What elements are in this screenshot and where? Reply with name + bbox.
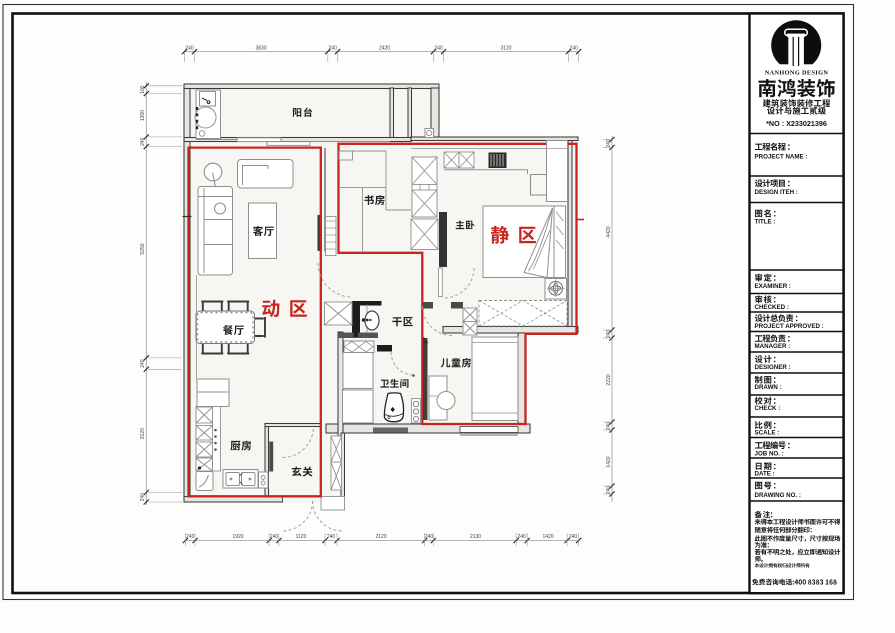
svg-text:4420: 4420 (606, 226, 612, 237)
svg-text:240: 240 (606, 422, 612, 431)
svg-text:240: 240 (327, 534, 336, 540)
svg-text:EXAMINER :: EXAMINER : (755, 283, 791, 290)
svg-text:240: 240 (606, 139, 612, 148)
svg-text:2130: 2130 (470, 534, 481, 540)
svg-text:240: 240 (518, 534, 527, 540)
svg-text:PROJECT NAME :: PROJECT NAME : (755, 153, 808, 160)
svg-text:5250: 5250 (140, 243, 146, 254)
svg-text:240: 240 (606, 486, 612, 495)
svg-text:3830: 3830 (255, 45, 266, 51)
svg-text:240: 240 (186, 534, 195, 540)
svg-text:2420: 2420 (379, 45, 390, 51)
svg-text:3120: 3120 (500, 45, 511, 51)
svg-text:MANAGER :: MANAGER : (755, 343, 791, 350)
svg-text:CHECKED :: CHECKED : (755, 304, 789, 311)
svg-text:1360: 1360 (140, 110, 146, 121)
svg-text:100: 100 (140, 85, 146, 94)
svg-text:1420: 1420 (606, 456, 612, 467)
svg-text:1120: 1120 (296, 534, 307, 540)
svg-text:PROJECT APPROVED :: PROJECT APPROVED : (755, 323, 824, 330)
svg-text:NANHONG DESIGN: NANHONG DESIGN (765, 70, 829, 77)
svg-text:SCALE :: SCALE : (755, 430, 780, 437)
svg-text:240: 240 (270, 534, 279, 540)
svg-text:3120: 3120 (140, 428, 146, 439)
svg-text:240: 240 (569, 45, 578, 51)
svg-text:DATE :: DATE : (755, 471, 775, 478)
svg-text:240: 240 (140, 137, 146, 146)
svg-text:DRAWN :: DRAWN : (755, 384, 782, 391)
svg-text:240: 240 (185, 45, 194, 51)
svg-text:240: 240 (569, 534, 578, 540)
svg-text:JOB NO. :: JOB NO. : (755, 450, 784, 457)
svg-text:DRAWING NO. :: DRAWING NO. : (755, 492, 801, 499)
svg-text:240: 240 (434, 45, 443, 51)
svg-text:1920: 1920 (232, 534, 243, 540)
svg-text:*NO : X233021396: *NO : X233021396 (766, 119, 827, 128)
svg-text:240: 240 (425, 534, 434, 540)
svg-text:2120: 2120 (375, 534, 386, 540)
svg-text:2220: 2220 (606, 374, 612, 385)
svg-text:CHECK :: CHECK : (755, 405, 781, 412)
svg-text:240: 240 (329, 45, 338, 51)
svg-text:DESIGNER :: DESIGNER : (755, 364, 791, 371)
svg-text:1420: 1420 (542, 534, 553, 540)
svg-text:TITLE :: TITLE : (755, 218, 776, 225)
svg-text:240: 240 (140, 359, 146, 368)
svg-text:240: 240 (606, 330, 612, 339)
svg-text:240: 240 (140, 493, 146, 502)
svg-text:DESIGN ITEH :: DESIGN ITEH : (755, 189, 798, 196)
